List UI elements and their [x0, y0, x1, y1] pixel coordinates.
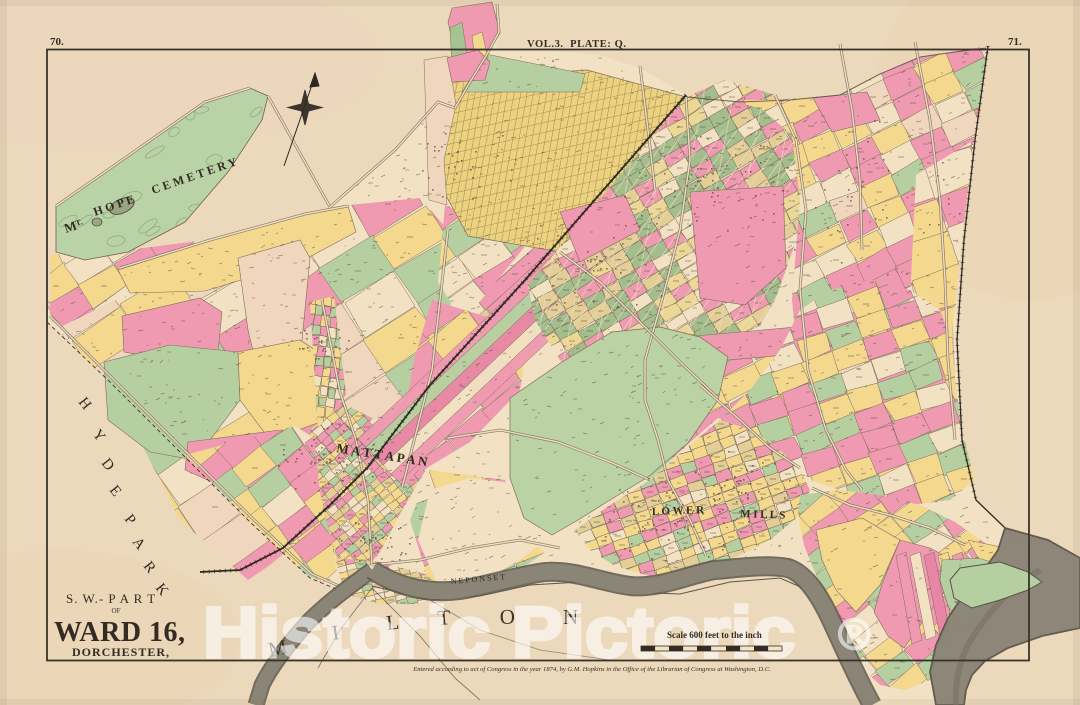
- svg-text:OF: OF: [112, 607, 121, 615]
- svg-text:71.: 71.: [1008, 36, 1022, 48]
- svg-text:Entered according to act of Co: Entered according to act of Congress in …: [412, 666, 771, 673]
- svg-text:70.: 70.: [50, 36, 64, 48]
- svg-text:®: ®: [838, 610, 870, 659]
- svg-text:Scale 600 feet to the inch: Scale 600 feet to the inch: [667, 630, 762, 640]
- svg-text:M I L L S: M I L L S: [740, 508, 786, 522]
- svg-text:DORCHESTER,: DORCHESTER,: [72, 645, 170, 659]
- svg-text:S. W.- P A R T: S. W.- P A R T: [66, 591, 156, 606]
- svg-text:VOL.3. PLATE: Q.: VOL.3. PLATE: Q.: [527, 39, 627, 50]
- svg-text:L O W E R: L O W E R: [652, 504, 706, 518]
- svg-text:WARD 16,: WARD 16,: [54, 617, 186, 648]
